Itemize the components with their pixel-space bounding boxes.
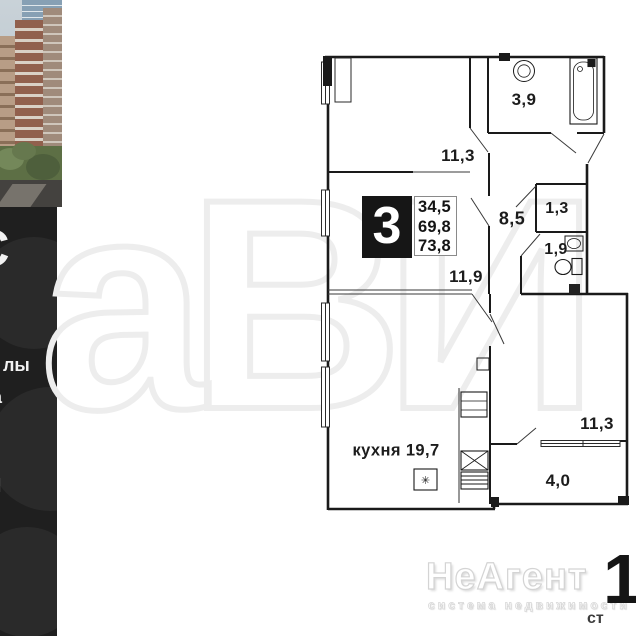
room-label-wc: 1,9	[544, 241, 567, 259]
room-label-closet: 1,3	[545, 200, 568, 218]
room-label-room-top: 11,3	[441, 146, 475, 166]
listing-image: С лы а И аВИ	[0, 0, 636, 636]
bathtub-icon	[570, 58, 597, 124]
area-value: 34,5	[418, 198, 456, 218]
apartment-badge: 3 34,5 69,8 73,8	[362, 196, 458, 258]
hob-icon	[461, 472, 488, 489]
room-label-bathroom: 3,9	[512, 90, 537, 110]
svg-text:✳: ✳	[421, 475, 430, 487]
areas-box: 34,5 69,8 73,8	[414, 196, 457, 256]
washing-machine-icon: ✳	[414, 469, 437, 490]
corner-text: ст	[587, 610, 604, 628]
brand-watermark: НеАгент	[426, 556, 588, 599]
room-label-hallway: 8,5	[499, 209, 525, 230]
balcony-window-icon	[541, 441, 620, 447]
room-label-room-middle: 11,9	[449, 267, 483, 287]
area-value: 69,8	[418, 218, 456, 238]
background-watermark: аВИ	[40, 136, 580, 472]
corner-digit: 1	[603, 544, 636, 614]
sink-icon	[514, 61, 535, 82]
floorplan: аВИ	[0, 0, 636, 636]
room-label-room-bottom: 11,3	[580, 414, 614, 434]
area-value: 73,8	[418, 237, 456, 257]
rooms-count: 3	[362, 196, 412, 258]
room-label-balcony: 4,0	[546, 471, 571, 491]
room-label-kitchen: кухня 19,7	[352, 442, 439, 461]
